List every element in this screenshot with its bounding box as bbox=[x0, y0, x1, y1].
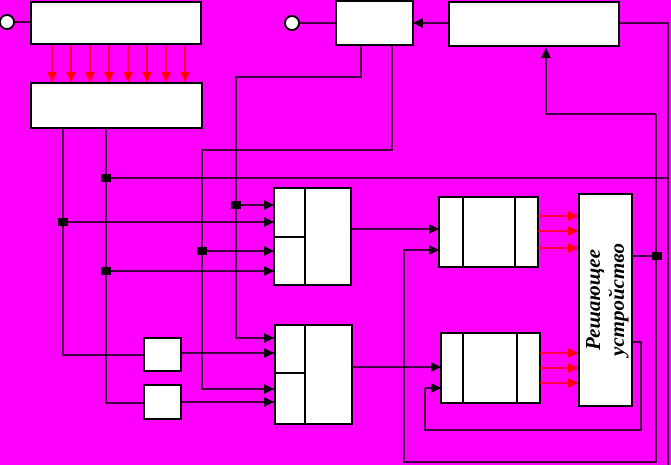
flow-arrow-head bbox=[413, 18, 423, 28]
signal-arrow-head bbox=[568, 243, 578, 253]
flow-arrow-head bbox=[264, 246, 274, 256]
junction-dot bbox=[652, 252, 662, 260]
terminal-circle bbox=[0, 15, 14, 29]
signal-arrow-head bbox=[161, 72, 171, 82]
signal-arrow-head bbox=[123, 72, 133, 82]
junction-dot bbox=[101, 174, 111, 182]
box-decider bbox=[579, 194, 632, 406]
signal-arrow-head bbox=[66, 72, 76, 82]
flow-arrow-head bbox=[264, 348, 274, 358]
connector-line bbox=[63, 128, 144, 355]
box-small-a bbox=[144, 338, 181, 371]
flow-arrow-head bbox=[264, 266, 274, 276]
flow-arrow-head bbox=[431, 383, 441, 393]
signal-arrow-head bbox=[568, 363, 578, 373]
connector-line bbox=[106, 128, 144, 403]
box-top-right bbox=[449, 2, 619, 46]
diagram-canvas bbox=[0, 0, 671, 465]
flow-arrow-head bbox=[541, 48, 551, 58]
flow-arrow-head bbox=[429, 245, 439, 255]
signal-arrow-head bbox=[180, 72, 190, 82]
terminal-circle bbox=[285, 16, 299, 30]
flow-arrow-head bbox=[264, 217, 274, 227]
box-mid-right bbox=[439, 197, 538, 267]
flow-arrow-head bbox=[429, 224, 439, 234]
flow-arrow-head bbox=[264, 200, 274, 210]
signal-arrow-head bbox=[568, 226, 578, 236]
flow-arrow-head bbox=[264, 333, 274, 343]
box-top-left-lower bbox=[31, 83, 202, 128]
signal-arrow-head bbox=[85, 72, 95, 82]
signal-arrow-head bbox=[104, 72, 114, 82]
signal-arrow-head bbox=[568, 348, 578, 358]
flow-arrow-head bbox=[264, 397, 274, 407]
signal-arrow-head bbox=[142, 72, 152, 82]
box-top-left-upper bbox=[31, 2, 201, 44]
box-lower-right bbox=[441, 333, 540, 403]
box-top-middle bbox=[336, 1, 413, 45]
signal-arrow-head bbox=[47, 72, 57, 82]
signal-arrow-head bbox=[568, 378, 578, 388]
flow-arrow-head bbox=[264, 384, 274, 394]
flow-arrow-head bbox=[431, 362, 441, 372]
box-small-b bbox=[144, 385, 181, 419]
box-lower-left bbox=[275, 325, 352, 424]
signal-arrow-head bbox=[568, 211, 578, 221]
